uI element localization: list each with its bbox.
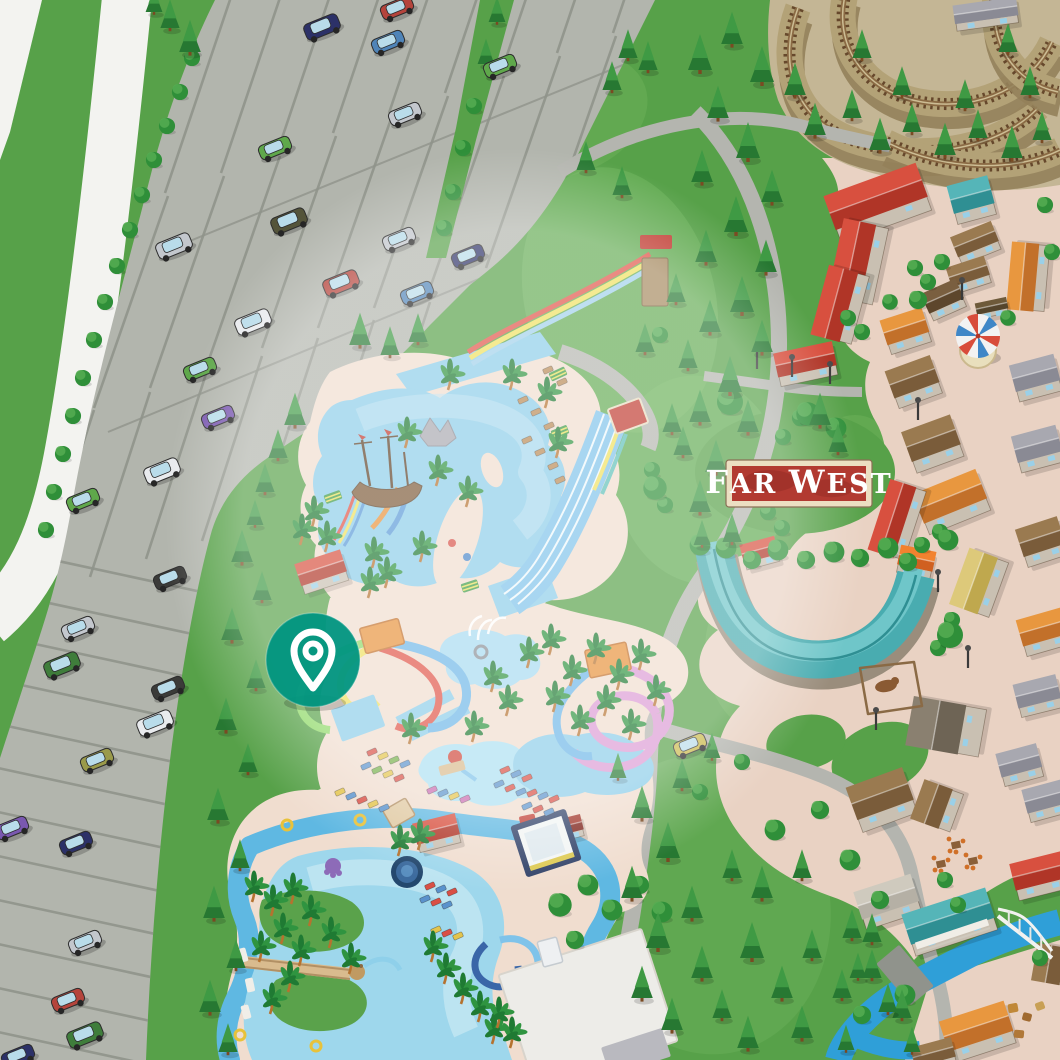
tree-shadow (794, 1037, 814, 1044)
tree-foliage (1001, 310, 1011, 320)
tree-foliage (148, 0, 159, 4)
waterpark-dots (330, 872, 336, 878)
tree-shadow (233, 868, 251, 874)
tree-shadow (845, 938, 863, 944)
tree-shadow (684, 917, 704, 924)
tree-foliage (135, 187, 145, 197)
tree-shadow (865, 942, 883, 948)
tree-foliage (915, 537, 925, 547)
tree-shadow (807, 134, 827, 141)
chair (948, 849, 953, 854)
tree-foliage (87, 332, 97, 342)
tree-shadow (624, 897, 644, 904)
tree-shadow (743, 957, 765, 965)
tree-foliage (98, 294, 108, 304)
tree-shadow (206, 917, 226, 924)
carousel (956, 314, 1001, 368)
chair (954, 850, 959, 855)
lamp-head (873, 707, 879, 713)
tree-shadow (840, 1050, 855, 1056)
tree-shadow (148, 12, 163, 18)
tree-shadow (694, 977, 714, 984)
tree-shadow (835, 998, 853, 1004)
tree-foliage (908, 260, 918, 270)
park-map-stage: FAR WEST (0, 0, 1060, 1060)
building-window (1036, 292, 1042, 299)
tree-shadow (1001, 52, 1019, 58)
tree-shadow (1004, 157, 1024, 164)
tree-foliage (883, 294, 893, 304)
tree-shadow (958, 108, 976, 114)
chair (947, 837, 952, 842)
waterpark-dots (324, 869, 330, 875)
tree-shadow (659, 857, 681, 865)
tree-foliage (456, 140, 466, 150)
map-art (0, 0, 1060, 1060)
tree-shadow (725, 878, 743, 884)
tree-shadow (753, 81, 775, 89)
tree-foliage (938, 530, 951, 543)
tree-shadow (971, 138, 989, 144)
tree-foliage (900, 553, 911, 564)
tree-shadow (605, 90, 623, 96)
tree-foliage (945, 612, 955, 622)
spotlight-highlight (165, 148, 865, 892)
tree-foliage (938, 622, 954, 638)
lamp-head (935, 569, 941, 575)
building-window (967, 22, 975, 28)
tree-shadow (724, 43, 744, 50)
tree-foliage (1045, 244, 1055, 254)
tree-shadow (764, 201, 784, 208)
tree-shadow (694, 181, 714, 188)
crates (1014, 1030, 1025, 1039)
tree-foliage (872, 891, 883, 902)
chair (961, 839, 966, 844)
tree-shadow (906, 1052, 921, 1058)
tree-foliage (602, 900, 615, 913)
tree-shadow (691, 69, 713, 77)
spotlight-highlight (165, 148, 865, 892)
building-window (1000, 18, 1008, 24)
tree-shadow (634, 997, 654, 1004)
tree-shadow (881, 1012, 899, 1018)
tree-foliage (549, 893, 563, 907)
lamp-head (959, 277, 965, 283)
lamp-head (965, 645, 971, 651)
tree-shadow (740, 1047, 760, 1054)
tree-foliage (160, 118, 170, 128)
tree-shadow (1023, 95, 1041, 101)
building-window (1039, 257, 1045, 264)
tree-foliage (123, 222, 133, 232)
tree-foliage (467, 98, 477, 108)
tree-foliage (812, 801, 823, 812)
tree-shadow (852, 978, 867, 984)
chair (971, 866, 976, 871)
tree-shadow (774, 997, 794, 1004)
tree-shadow (710, 117, 730, 124)
tree-shadow (664, 1029, 684, 1036)
tree-shadow (787, 94, 807, 101)
tree-foliage (110, 258, 120, 268)
chair (946, 858, 951, 863)
tree-foliage (39, 522, 49, 532)
tree-shadow (241, 772, 259, 778)
far-west-sign-label: FAR WEST (705, 463, 892, 501)
tree-shadow (649, 947, 671, 955)
tree-foliage (935, 254, 945, 264)
tree-shadow (182, 51, 202, 58)
tree-foliage (1033, 950, 1043, 960)
chair (965, 865, 970, 870)
tree-shadow (739, 157, 761, 165)
tree-foliage (1038, 197, 1048, 207)
tree-shadow (754, 897, 774, 904)
tree-shadow (895, 1018, 913, 1024)
tree-shadow (805, 958, 823, 964)
tree-shadow (845, 118, 863, 124)
tree-shadow (715, 1018, 733, 1024)
tree-shadow (855, 58, 873, 64)
chair (932, 856, 937, 861)
chair (933, 868, 938, 873)
horse (891, 677, 899, 685)
tree-foliage (147, 152, 157, 162)
tree-shadow (895, 95, 913, 101)
tree-foliage (652, 902, 665, 915)
tree-foliage (910, 291, 921, 302)
tree-shadow (210, 819, 230, 826)
tree-shadow (229, 968, 247, 974)
waterpark-dots (336, 870, 342, 876)
tree-shadow (905, 132, 923, 138)
tree-foliage (567, 931, 578, 942)
tree-foliage (56, 446, 66, 456)
tree-shadow (872, 149, 892, 156)
tree-shadow (865, 978, 883, 984)
carousel-top (976, 334, 981, 339)
tree-shadow (937, 154, 957, 161)
park-map[interactable]: FAR WEST (0, 0, 1060, 1060)
tree-foliage (938, 872, 948, 882)
tree-foliage (47, 484, 57, 494)
tree-foliage (921, 274, 931, 284)
tree-foliage (173, 84, 183, 94)
tree-shadow (163, 28, 181, 34)
tree-shadow (795, 878, 813, 884)
tree-foliage (76, 370, 86, 380)
tree-shadow (1035, 140, 1053, 146)
tree-shadow (641, 70, 659, 76)
chair (978, 855, 983, 860)
tree-foliage (66, 408, 76, 418)
tree-foliage (841, 310, 851, 320)
lamp-head (915, 397, 921, 403)
chair (964, 853, 969, 858)
tree-foliage (854, 1006, 865, 1017)
tree-foliage (765, 820, 778, 833)
crates (1007, 1003, 1018, 1014)
tree-shadow (202, 1011, 222, 1018)
tree-foliage (878, 538, 891, 551)
tree-foliage (855, 324, 865, 334)
tree-shadow (221, 1052, 239, 1058)
tree-foliage (951, 897, 961, 907)
tree-shadow (621, 58, 639, 64)
tree-shadow (491, 22, 506, 28)
tree-foliage (840, 850, 853, 863)
